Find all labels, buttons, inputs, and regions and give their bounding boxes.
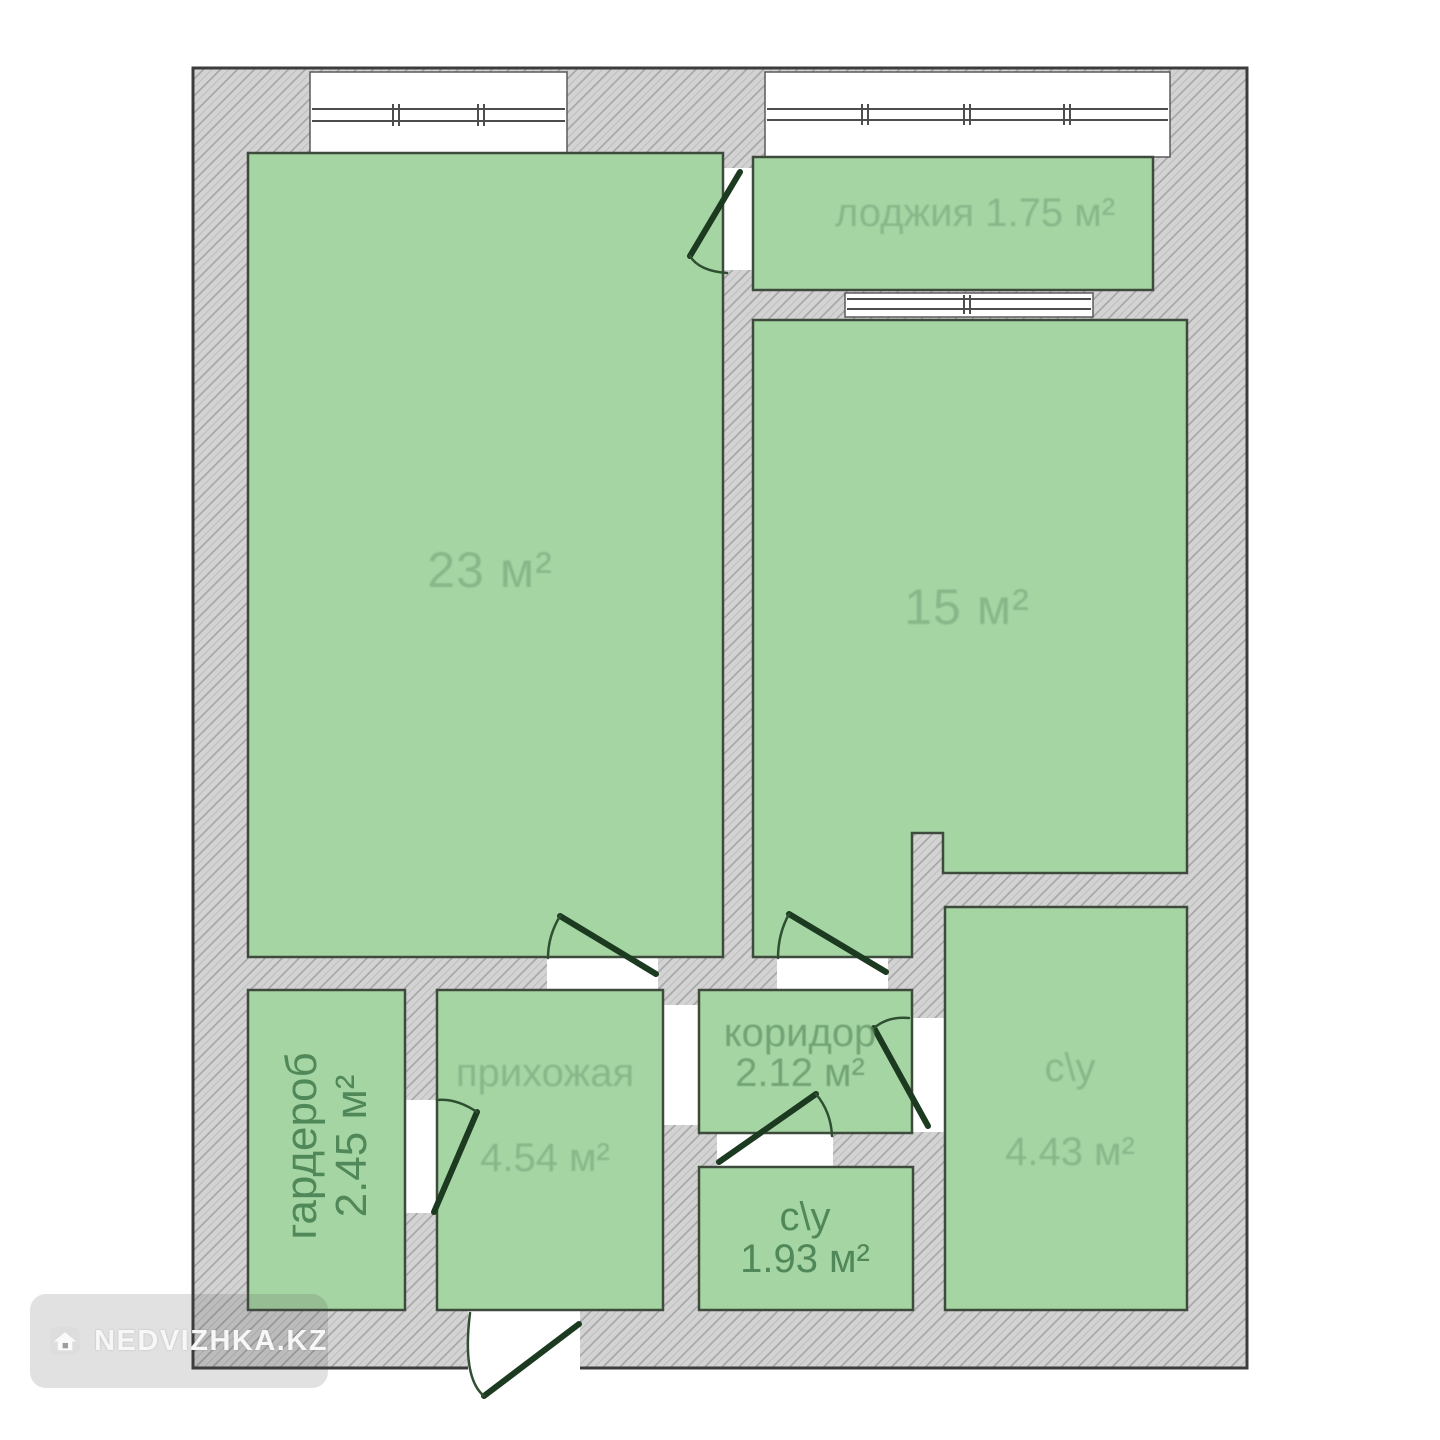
room-wardrobe xyxy=(248,990,405,1310)
window-loggia-top xyxy=(765,72,1170,157)
window-living-top xyxy=(310,72,567,153)
room-bathroom-large xyxy=(945,907,1187,1310)
watermark: NEDVIZHKA.KZ xyxy=(30,1294,328,1388)
room-bathroom-small xyxy=(699,1167,913,1310)
watermark-text: NEDVIZHKA.KZ xyxy=(94,1325,328,1358)
room-bedroom xyxy=(753,320,1187,957)
door-opening-living xyxy=(547,955,658,992)
door-opening-wardrobe xyxy=(403,1100,437,1213)
floor-plan xyxy=(0,0,1440,1440)
door-opening-loggia xyxy=(723,168,753,270)
door-opening-bath-large xyxy=(910,1018,945,1132)
passage-hallway-corridor xyxy=(663,1005,699,1125)
room-corridor xyxy=(699,990,912,1133)
room-hallway xyxy=(437,990,663,1310)
house-icon xyxy=(50,1312,80,1370)
room-living xyxy=(248,153,723,957)
window-loggia-bedroom xyxy=(845,293,1093,317)
floor-plan-page: лоджия 1.75 м² 23 м² 15 м² прихожая 4.54… xyxy=(0,0,1440,1440)
room-loggia xyxy=(753,157,1153,290)
